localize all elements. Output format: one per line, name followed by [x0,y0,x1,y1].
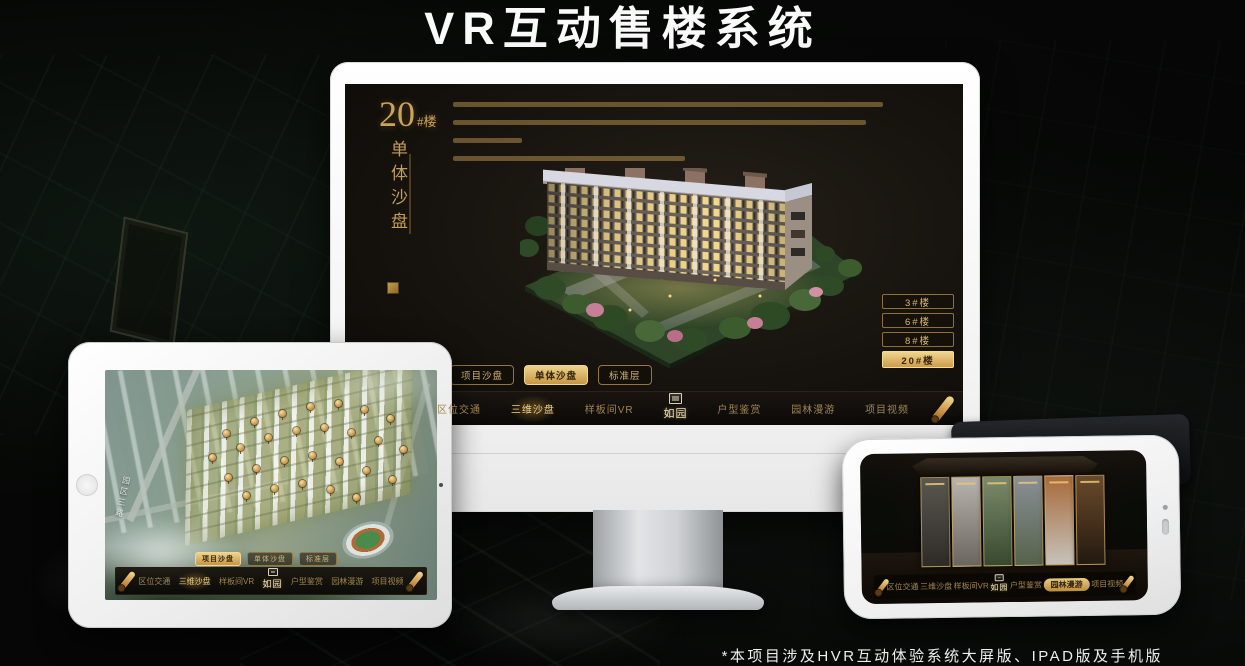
nav-item-3d-sandbox[interactable]: 三维沙盘 [920,580,952,591]
speaker-icon [1162,519,1169,535]
stage: VR互动售楼系统 20#楼 单体沙盘 [0,0,1245,666]
monitor-stand-base [552,586,764,610]
ruyuan-logo[interactable]: 如园 [263,568,283,590]
title-unit: #楼 [417,114,437,129]
building-badge[interactable] [265,434,272,441]
building-button[interactable]: 6#楼 [882,313,954,328]
building-badge[interactable] [327,486,334,493]
scene-card[interactable] [1044,475,1074,565]
ipad-device: 园区三路 项目沙盘 单体沙盘 标准层 区位交通 三维沙盘 样板间VR 如园 户型… [68,342,452,628]
scene-card[interactable] [920,477,950,567]
tab-single-sandbox[interactable]: 单体沙盘 [247,552,293,566]
description-line [453,156,685,161]
title-number: 20 [379,94,415,134]
camera-icon [1163,505,1168,510]
building-badge[interactable] [361,406,368,413]
home-button[interactable] [76,474,98,496]
scroll-icon[interactable] [931,394,956,423]
ipad-screen: 园区三路 项目沙盘 单体沙盘 标准层 区位交通 三维沙盘 样板间VR 如园 户型… [105,370,437,600]
building-badge[interactable] [281,457,288,464]
nav-item-3d-sandbox[interactable]: 三维沙盘 [179,576,211,587]
nav-item-garden-tour[interactable]: 园林漫游 [1043,577,1089,591]
ruyuan-logo[interactable]: 如园 [663,393,687,421]
building-button-active[interactable]: 20#楼 [882,351,954,368]
nav-item-garden-tour[interactable]: 园林漫游 [791,401,835,416]
subtitle-vertical: 单体沙盘 [385,140,410,260]
nav-item-garden-tour[interactable]: 园林漫游 [331,576,363,587]
tab-standard-floor[interactable]: 标准层 [598,365,652,385]
seal-icon [387,282,399,294]
ipad-tab-bar: 项目沙盘 单体沙盘 标准层 [195,552,337,566]
tab-standard-floor[interactable]: 标准层 [299,552,337,566]
nav-item-showroom-vr[interactable]: 样板间VR [585,401,634,416]
nav-item-showroom-vr[interactable]: 样板间VR [219,576,254,587]
seal-icon [669,393,682,404]
building-badge[interactable] [225,474,232,481]
description-line [453,120,866,125]
tab-single-sandbox[interactable]: 单体沙盘 [524,365,588,385]
tab-project-sandbox[interactable]: 项目沙盘 [450,365,514,385]
building-badge[interactable] [237,444,244,451]
logo-text: 如园 [263,577,283,590]
building-badge[interactable] [375,437,382,444]
nav-item-location[interactable]: 区位交通 [886,581,918,592]
building-badge[interactable] [309,452,316,459]
page-title: VR互动售楼系统 [0,0,1245,58]
phone-nav-bar: 区位交通 三维沙盘 样板间VR 如园 户型鉴赏 园林漫游 项目视频 [874,571,1136,599]
building-badge[interactable] [279,410,286,417]
building-badge[interactable] [353,494,360,501]
building-badge[interactable] [363,467,370,474]
scene-card[interactable] [951,476,981,566]
scene-card[interactable] [982,476,1012,566]
building-button[interactable]: 3#楼 [882,294,954,309]
description-line [453,102,883,107]
building-badge[interactable] [243,492,250,499]
ipad-nav-bar: 区位交通 三维沙盘 样板间VR 如园 户型鉴赏 园林漫游 项目视频 [115,567,427,595]
building-badge[interactable] [335,400,342,407]
monitor-tab-bar: 项目沙盘 单体沙盘 标准层 [450,365,652,385]
building-badge[interactable] [293,427,300,434]
phone-device: 区位交通 三维沙盘 样板间VR 如园 户型鉴赏 园林漫游 项目视频 [842,435,1181,620]
nav-item-floorplans[interactable]: 户型鉴赏 [1010,579,1042,590]
monitor-stand-neck [593,510,723,590]
seal-icon [995,574,1004,581]
building-badge[interactable] [321,424,328,431]
building-badge[interactable] [348,429,355,436]
building-badge[interactable] [336,458,343,465]
building-badge[interactable] [251,418,258,425]
building-badge[interactable] [223,430,230,437]
nav-item-project-video[interactable]: 项目视频 [865,401,909,416]
nav-item-location[interactable]: 区位交通 [138,576,170,587]
building-button-group: 3#楼 6#楼 8#楼 20#楼 [882,294,954,368]
scroll-icon[interactable] [406,570,424,591]
logo-text: 如园 [663,405,687,421]
building-badge[interactable] [271,485,278,492]
building-badge[interactable] [387,415,394,422]
wall-picture-frame [110,216,189,347]
scroll-icon[interactable] [118,570,136,591]
scene-card[interactable] [1013,476,1043,566]
scene-card[interactable] [1075,475,1105,565]
logo-text: 如园 [990,582,1008,593]
building-badge[interactable] [253,465,260,472]
nav-item-project-video[interactable]: 项目视频 [372,576,404,587]
phone-screen: 区位交通 三维沙盘 样板间VR 如园 户型鉴赏 园林漫游 项目视频 [860,450,1148,604]
nav-item-showroom-vr[interactable]: 样板间VR [954,580,989,591]
subtitle-english-bar [409,154,411,234]
ruyuan-logo[interactable]: 如园 [990,574,1008,593]
nav-item-location[interactable]: 区位交通 [437,401,481,416]
building-badge[interactable] [400,446,407,453]
nav-item-floorplans[interactable]: 户型鉴赏 [291,576,323,587]
nav-item-3d-sandbox[interactable]: 三维沙盘 [511,401,555,416]
building-button[interactable]: 8#楼 [882,332,954,347]
tab-project-sandbox[interactable]: 项目沙盘 [195,552,241,566]
building-badge[interactable] [299,480,306,487]
building-badge[interactable] [209,454,216,461]
description-paragraph [453,102,883,174]
camera-icon [439,483,443,487]
footnote: *本项目涉及HVR互动体验系统大屏版、IPAD版及手机版 [722,645,1163,666]
building-model-3d[interactable] [520,168,920,368]
seal-icon [268,568,278,576]
building-badge[interactable] [389,476,396,483]
description-line [453,138,522,143]
nav-item-floorplans[interactable]: 户型鉴赏 [717,401,761,416]
building-badge[interactable] [307,403,314,410]
